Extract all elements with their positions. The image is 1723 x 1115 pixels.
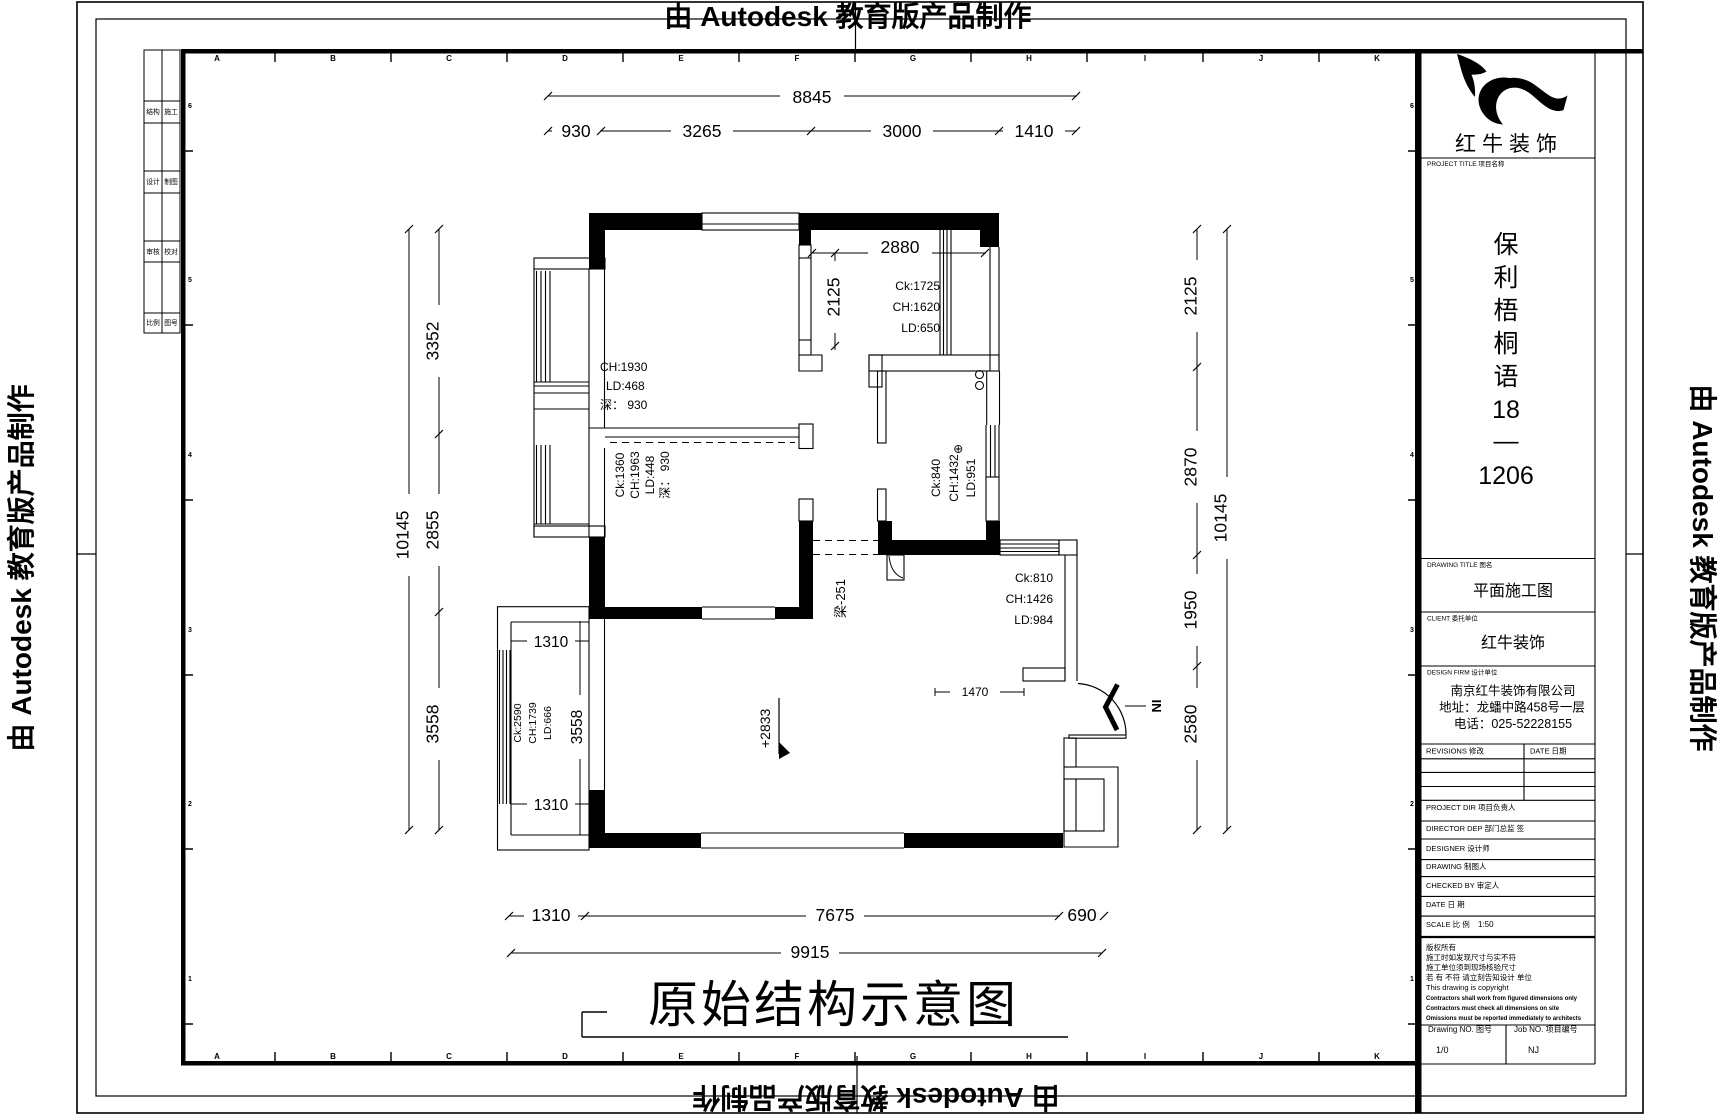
svg-text:PROJECT TITLE 项目名称: PROJECT TITLE 项目名称 [1427,159,1505,168]
svg-text:Ck:1725: Ck:1725 [895,279,940,293]
svg-text:5: 5 [1410,277,1414,284]
svg-text:E: E [678,54,684,63]
svg-text:1310: 1310 [534,797,569,814]
svg-text:E: E [678,1052,684,1061]
svg-text:CH:1426: CH:1426 [1006,592,1054,606]
svg-text:+2833: +2833 [757,708,773,748]
svg-text:3265: 3265 [683,121,722,141]
svg-text:930: 930 [561,121,590,141]
svg-text:原始结构示意图: 原始结构示意图 [648,977,1019,1033]
svg-text:深： 930: 深： 930 [600,398,648,412]
svg-text:红牛装饰: 红牛装饰 [1455,133,1563,156]
svg-text:Ck:1360: Ck:1360 [613,452,627,497]
svg-text:3352: 3352 [423,322,443,361]
svg-text:结构: 结构 [146,107,160,116]
svg-text:D: D [562,54,568,63]
svg-text:IN: IN [1149,700,1164,713]
svg-text:制图: 制图 [164,177,178,186]
svg-text:地址：龙蟠中路458号一层: 地址：龙蟠中路458号一层 [1439,700,1585,715]
svg-text:G: G [910,54,916,63]
svg-text:深： 930: 深： 930 [658,451,672,499]
svg-text:DRAWING 制图人: DRAWING 制图人 [1426,861,1487,871]
svg-text:DATE 日 期: DATE 日 期 [1426,900,1465,909]
svg-text:施工: 施工 [164,107,178,116]
svg-text:红牛装饰: 红牛装饰 [1481,634,1545,652]
svg-text:3: 3 [1410,627,1414,634]
svg-text:H: H [1026,54,1032,63]
svg-text:施工时如发现尺寸与实不符: 施工时如发现尺寸与实不符 [1426,952,1516,962]
svg-text:D: D [562,1052,568,1061]
svg-text:LD:448: LD:448 [643,455,657,494]
svg-text:若 有 不符 请立刻告知设计 单位: 若 有 不符 请立刻告知设计 单位 [1426,972,1532,982]
svg-text:CHECKED BY 审定人: CHECKED BY 审定人 [1426,880,1500,890]
svg-text:电话：025-52228155: 电话：025-52228155 [1454,717,1572,731]
svg-text:—: — [1494,427,1519,455]
svg-text:1:50: 1:50 [1478,920,1494,929]
svg-text:DESIGNER 设计师: DESIGNER 设计师 [1426,843,1490,853]
svg-text:DIRECTOR DEP 部门总监 签: DIRECTOR DEP 部门总监 签 [1426,823,1525,833]
svg-text:SCALE 比 例: SCALE 比 例 [1426,919,1470,929]
svg-text:Ck:2590: Ck:2590 [512,703,524,742]
svg-text:3558: 3558 [423,705,443,744]
svg-text:2870: 2870 [1181,447,1201,486]
svg-text:版权所有: 版权所有 [1426,942,1456,952]
svg-text:F: F [795,1052,800,1061]
svg-text:2: 2 [1410,801,1414,808]
svg-text:Drawing NO. 图号: Drawing NO. 图号 [1428,1025,1492,1034]
svg-text:LD:951: LD:951 [964,458,978,497]
svg-text:1950: 1950 [1181,590,1201,629]
svg-text:3000: 3000 [883,121,922,141]
svg-text:4: 4 [1410,452,1414,459]
svg-text:6: 6 [188,103,192,110]
svg-text:PROJECT DIR 项目负责人: PROJECT DIR 项目负责人 [1426,802,1516,812]
svg-text:保: 保 [1493,231,1518,259]
svg-text:1206: 1206 [1478,462,1534,490]
svg-text:校对: 校对 [164,247,178,256]
svg-text:1: 1 [1410,976,1414,983]
svg-text:CH:1963: CH:1963 [628,451,642,499]
svg-text:CH:1739: CH:1739 [527,702,539,744]
svg-text:C: C [446,54,452,63]
svg-text:8845: 8845 [793,87,832,107]
svg-text:B: B [330,1052,336,1061]
svg-text:DESIGN FIRM 设计单位: DESIGN FIRM 设计单位 [1427,668,1498,677]
svg-text:Ck:810: Ck:810 [1015,571,1053,585]
svg-text:10145: 10145 [393,511,413,560]
svg-text:LD:984: LD:984 [1014,613,1053,627]
svg-text:施工单位须到现场核验尺寸: 施工单位须到现场核验尺寸 [1426,962,1516,972]
svg-text:1: 1 [188,976,192,983]
svg-text:3: 3 [188,627,192,634]
svg-text:1470: 1470 [962,685,989,699]
svg-text:南京红牛装饰有限公司: 南京红牛装饰有限公司 [1450,683,1575,698]
svg-text:Job NO. 项目编号: Job NO. 项目编号 [1514,1024,1578,1034]
svg-text:REVISIONS 修改: REVISIONS 修改 [1426,746,1484,756]
svg-text:2125: 2125 [824,278,844,317]
svg-text:2580: 2580 [1181,704,1201,743]
svg-text:DATE 日期: DATE 日期 [1530,747,1567,756]
svg-text:LD:650: LD:650 [901,321,940,335]
svg-text:桐: 桐 [1493,330,1518,358]
svg-text:3558: 3558 [569,710,586,744]
svg-text:2: 2 [188,801,192,808]
svg-text:CH:1432: CH:1432 [947,454,961,502]
svg-text:CH:1930: CH:1930 [600,360,648,374]
svg-text:K: K [1374,1052,1380,1061]
svg-text:利: 利 [1493,264,1518,292]
svg-text:This drawing is copyright: This drawing is copyright [1426,983,1509,992]
svg-text:1/0: 1/0 [1436,1045,1449,1055]
svg-text:Omissions must be reported imm: Omissions must be reported immediately t… [1426,1016,1582,1022]
svg-text:语: 语 [1493,363,1518,391]
svg-text:由 Autodesk 教育版产品制作: 由 Autodesk 教育版产品制作 [5,384,37,751]
svg-text:A: A [214,54,220,63]
svg-text:C: C [446,1052,452,1061]
svg-text:J: J [1259,1052,1263,1061]
svg-text:Contractors must check all dim: Contractors must check all dimensions on… [1426,1006,1560,1012]
svg-text:平面施工图: 平面施工图 [1473,582,1553,600]
svg-text:690: 690 [1067,905,1096,925]
svg-text:由 Autodesk 教育版产品制作: 由 Autodesk 教育版产品制作 [664,0,1031,32]
svg-text:审核: 审核 [146,247,160,256]
svg-text:NJ: NJ [1528,1045,1539,1055]
svg-text:7675: 7675 [816,905,855,925]
svg-text:18: 18 [1492,396,1520,424]
svg-text:由 Autodesk 教育版产品制作: 由 Autodesk 教育版产品制作 [692,1082,1059,1114]
svg-text:1310: 1310 [532,905,571,925]
svg-text:2125: 2125 [1181,277,1201,316]
svg-text:F: F [795,54,800,63]
svg-text:G: G [910,1052,916,1061]
svg-text:6: 6 [1410,103,1414,110]
svg-text:Contractors shall work from fi: Contractors shall work from figured dime… [1426,996,1578,1002]
svg-text:I: I [1144,1052,1146,1061]
svg-text:Ck:840: Ck:840 [929,459,943,497]
svg-text:5: 5 [188,277,192,284]
svg-text:LD:468: LD:468 [606,379,645,393]
svg-text:1410: 1410 [1015,121,1054,141]
svg-text:H: H [1026,1052,1032,1061]
svg-text:设计: 设计 [146,177,160,186]
svg-text:DRAWING TITLE 图名: DRAWING TITLE 图名 [1427,560,1492,569]
svg-text:图号: 图号 [164,319,178,327]
svg-text:LD:666: LD:666 [542,706,554,740]
svg-text:B: B [330,54,336,63]
svg-text:10145: 10145 [1211,494,1231,543]
svg-text:2880: 2880 [881,237,920,257]
svg-text:梁-251: 梁-251 [833,579,848,618]
svg-text:⊕: ⊕ [951,444,965,454]
svg-text:4: 4 [188,452,192,459]
svg-text:1310: 1310 [534,634,569,651]
svg-text:A: A [214,1052,220,1061]
svg-text:CLIENT 委托单位: CLIENT 委托单位 [1427,614,1478,623]
svg-text:比例: 比例 [146,318,160,327]
svg-text:2855: 2855 [423,511,443,550]
svg-text:CH:1620: CH:1620 [893,300,941,314]
svg-text:J: J [1259,54,1263,63]
svg-text:由 Autodesk 教育版产品制作: 由 Autodesk 教育版产品制作 [1687,384,1719,751]
svg-text:梧: 梧 [1493,297,1518,325]
svg-text:K: K [1374,54,1380,63]
svg-text:I: I [1144,54,1146,63]
svg-text:9915: 9915 [791,942,830,962]
